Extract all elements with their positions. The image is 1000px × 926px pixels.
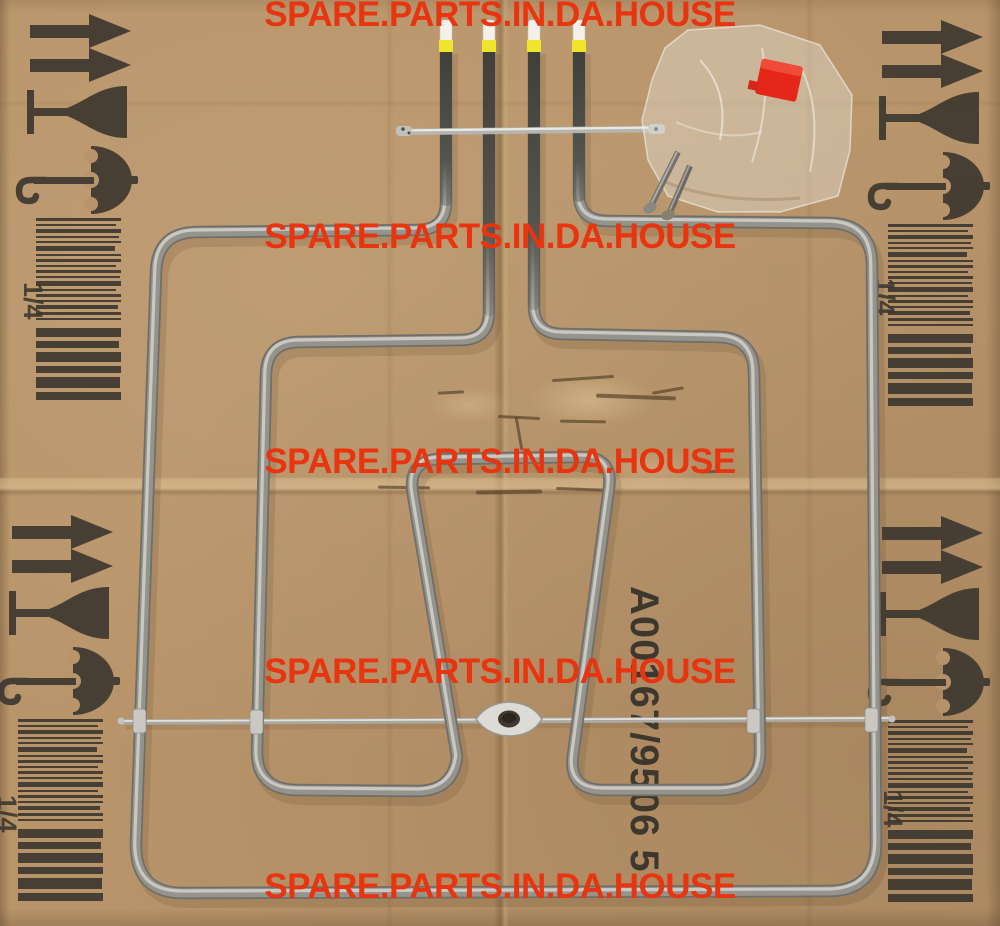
eyelet-bracket bbox=[476, 702, 542, 736]
terminal-cold-section bbox=[446, 46, 579, 200]
watermark: SPARE.PARTS.IN.DA.HOUSE bbox=[264, 654, 735, 689]
plastic-bag bbox=[642, 25, 852, 222]
watermark: SPARE.PARTS.IN.DA.HOUSE bbox=[264, 0, 735, 32]
watermark: SPARE.PARTS.IN.DA.HOUSE bbox=[264, 444, 735, 479]
watermark: SPARE.PARTS.IN.DA.HOUSE bbox=[264, 219, 735, 254]
watermark: SPARE.PARTS.IN.DA.HOUSE bbox=[264, 869, 735, 904]
product-photo: 1/4 1/4 1/4 1/4 A00167/9506 5 bbox=[0, 0, 1000, 926]
